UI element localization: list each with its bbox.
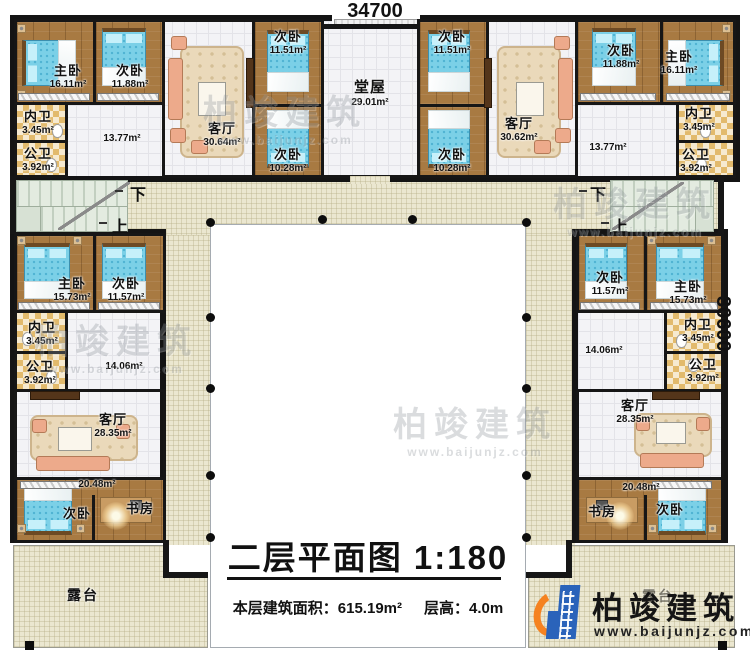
room-label-bedroom: 次卧11.88m² — [603, 44, 640, 70]
tv-cabinet — [246, 58, 254, 108]
sofa — [36, 456, 110, 471]
armchair — [171, 36, 187, 50]
wardrobe — [18, 93, 90, 101]
nightstand — [17, 524, 26, 533]
coffee-table — [58, 427, 92, 451]
room-label-living: 客厅30.64m² — [203, 122, 240, 148]
floor-plan-canvas: 下 上 下 上 — [0, 0, 750, 658]
room-label-bedroom: 次卧 — [656, 503, 684, 518]
armchair — [32, 419, 47, 433]
room-label-master-bedroom: 主卧16.11m² — [661, 50, 698, 76]
room-label-bedroom: 次卧11.51m² — [434, 30, 471, 56]
wardrobe — [20, 481, 80, 489]
wardrobe — [97, 93, 159, 101]
plan-title: 二层平面图 1:180 — [210, 531, 526, 579]
room-label-inner-bath: 内卫3.45m² — [683, 107, 715, 133]
terrace-notch-left — [169, 545, 208, 572]
room-label-public-bath: 公卫3.92m² — [22, 147, 54, 173]
room-label-hall-area: 14.06m² — [585, 345, 622, 356]
brand-name: 柏竣建筑 — [592, 583, 740, 628]
plan-subtitle: 本层建筑面积：615.19m²层高：4.0m — [180, 597, 556, 618]
stair-landing — [16, 206, 41, 232]
room-label-bedroom: 次卧10.28m² — [269, 148, 306, 174]
terrace-notch-right — [528, 545, 566, 572]
room-label-bedroom: 次卧11.57m² — [592, 271, 629, 297]
coffee-table — [516, 82, 544, 116]
nightstand — [722, 24, 731, 33]
room-label-public-bath: 公卫3.92m² — [680, 148, 712, 174]
nightstand — [17, 24, 26, 33]
floor-height-value: 4.0m — [469, 600, 503, 617]
coffee-table — [656, 422, 686, 444]
room-label-master-bedroom: 主卧16.11m² — [50, 64, 87, 90]
room-label-bedroom: 次卧 — [63, 507, 91, 522]
nightstand — [647, 236, 656, 245]
armchair — [554, 36, 570, 50]
nightstand — [17, 236, 26, 245]
room-label-living: 客厅30.62m² — [500, 117, 537, 143]
tv-cabinet — [30, 391, 80, 400]
logo-building-icon — [556, 585, 581, 639]
plan-title-text: 二层平面图 — [228, 539, 403, 576]
wardrobe — [580, 302, 640, 310]
wardrobe — [18, 302, 90, 310]
nightstand — [73, 236, 82, 245]
room-label-bedroom: 次卧11.88m² — [112, 64, 149, 90]
armchair — [696, 417, 710, 431]
walkway-left — [163, 235, 210, 545]
wardrobe — [580, 93, 656, 101]
area-value: 615.19m² — [338, 600, 402, 617]
nightstand — [76, 524, 85, 533]
room-label-inner-bath: 内卫3.45m² — [22, 110, 54, 136]
stair-up-label: 上 — [612, 213, 628, 237]
room-label-bedroom: 次卧11.57m² — [108, 277, 145, 303]
main-hall-door-gap — [350, 176, 390, 184]
stair-down-label: 下 — [590, 181, 606, 205]
room-label-inner-bath: 内卫3.45m² — [682, 318, 714, 344]
room-label-master-bedroom: 主卧15.73m² — [53, 277, 90, 303]
nightstand — [648, 524, 657, 533]
room-label-living: 客厅28.35m² — [616, 399, 653, 425]
armchair — [170, 128, 186, 143]
stair-up-label: 上 — [112, 213, 128, 237]
room-label-hall-area: 13.77m² — [103, 133, 140, 144]
wardrobe — [98, 302, 160, 310]
room-label-living: 客厅28.35m² — [94, 413, 131, 439]
sofa — [640, 453, 704, 468]
armchair — [555, 128, 571, 143]
room-label-study: 书房 — [588, 505, 616, 520]
plan-scale: 1:180 — [414, 539, 508, 576]
room-label-study: 书房 — [126, 502, 154, 517]
stair-landing — [695, 206, 714, 232]
room-label-hall-area: 13.77m² — [589, 142, 626, 153]
nightstand — [707, 236, 716, 245]
room-label-suite-area: 20.48m² — [622, 482, 659, 493]
stair-down-label: 下 — [130, 181, 146, 205]
wardrobe — [666, 93, 730, 101]
room-label-public-bath: 公卫3.92m² — [24, 360, 56, 386]
tv-cabinet — [484, 58, 492, 108]
title-underline — [227, 577, 501, 580]
dimension-height: 30600 — [711, 296, 734, 386]
room-label-suite-area: 20.48m² — [78, 479, 115, 490]
room-label-hall-area: 14.06m² — [105, 361, 142, 372]
dimension-width: 34700 — [300, 0, 450, 23]
sofa — [558, 58, 573, 120]
brand-logo: 柏竣建筑 www.baijunjz.com — [534, 583, 744, 649]
floor-height-label: 层高： — [424, 600, 469, 617]
room-label-bedroom: 次卧10.28m² — [433, 148, 470, 174]
walkway-right — [526, 235, 575, 545]
nightstand — [708, 524, 717, 533]
room-label-master-bedroom: 主卧15.73m² — [669, 280, 706, 306]
sofa — [168, 58, 183, 120]
room-label-terrace: 露台 — [67, 588, 99, 604]
tv-cabinet — [652, 391, 700, 400]
room-label-bedroom: 次卧11.51m² — [270, 30, 307, 56]
room-label-main-hall: 堂屋29.01m² — [351, 80, 388, 108]
wardrobe — [652, 481, 712, 489]
courtyard-void — [210, 224, 526, 648]
room-label-inner-bath: 内卫3.45m² — [26, 321, 58, 347]
area-label: 本层建筑面积： — [233, 600, 338, 617]
coffee-table — [198, 82, 226, 116]
brand-site: www.baijunjz.com — [594, 623, 750, 639]
